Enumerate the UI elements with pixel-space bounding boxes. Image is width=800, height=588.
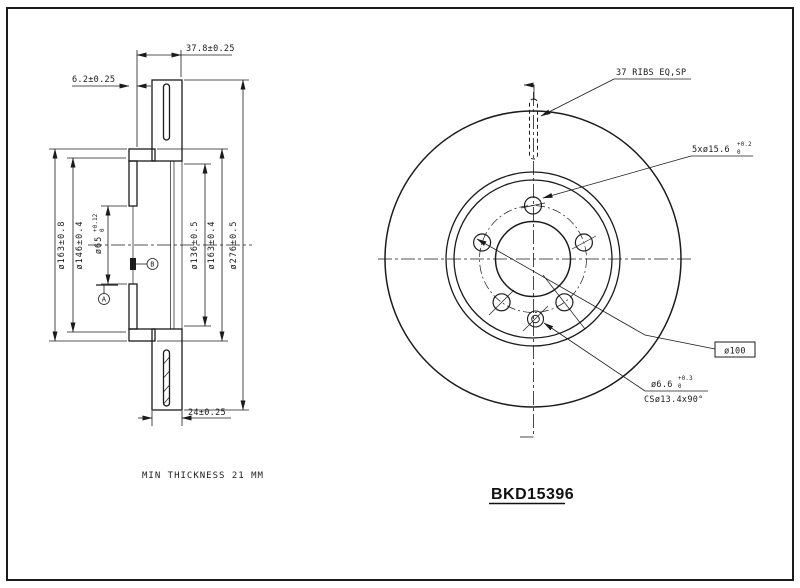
dim-flange-od-label: ø146±0.4 xyxy=(75,221,85,270)
datum-b-target xyxy=(130,258,136,270)
dim-total-width-label: 37.8±0.25 xyxy=(186,44,235,54)
part-number-block: BKD15396 xyxy=(489,486,574,504)
engineering-drawing: 37.8±0.25 6.2±0.25 24±0.25 ø163±0.8 xyxy=(0,0,800,588)
dim-bore-tol-base: 0 xyxy=(100,228,106,232)
min-thickness-note: MIN THICKNESS 21 MM xyxy=(142,471,264,481)
bolt-holes-label: 5xø15.6 xyxy=(692,145,730,155)
bolt-holes-tol-plus: +0.2 xyxy=(737,142,752,148)
datum-a-label: A xyxy=(102,296,107,304)
dim-hat-offset-label: 6.2±0.25 xyxy=(72,75,115,85)
pcd-label: ø100 xyxy=(724,347,746,357)
bolt-holes-tol-base: 0 xyxy=(737,150,741,156)
dim-friction-id-label: ø136±0.5 xyxy=(190,221,200,270)
screw-hole-label: ø6.6 xyxy=(651,380,673,390)
ribs-note-label: 37 RIBS EQ,SP xyxy=(616,68,686,78)
paper xyxy=(0,0,800,588)
dim-disc-od-label: ø276±0.5 xyxy=(229,221,239,270)
dim-hat-od-right-label: ø163±0.4 xyxy=(207,221,217,270)
drawing-page: 37.8±0.25 6.2±0.25 24±0.25 ø163±0.8 xyxy=(0,0,800,588)
dim-bore-label: ø65 xyxy=(94,236,104,254)
screw-tol-plus: +0.3 xyxy=(678,376,693,382)
dim-hat-od-left-label: ø163±0.8 xyxy=(57,221,67,270)
screw-tol-base: 0 xyxy=(678,384,682,390)
part-number: BKD15396 xyxy=(491,486,574,503)
dim-bore-tol-plus: +0.12 xyxy=(93,214,99,232)
countersink-label: CSø13.4x90° xyxy=(644,395,704,405)
datum-b-label: B xyxy=(150,261,154,269)
dim-ring-width-label: 24±0.25 xyxy=(188,408,226,418)
